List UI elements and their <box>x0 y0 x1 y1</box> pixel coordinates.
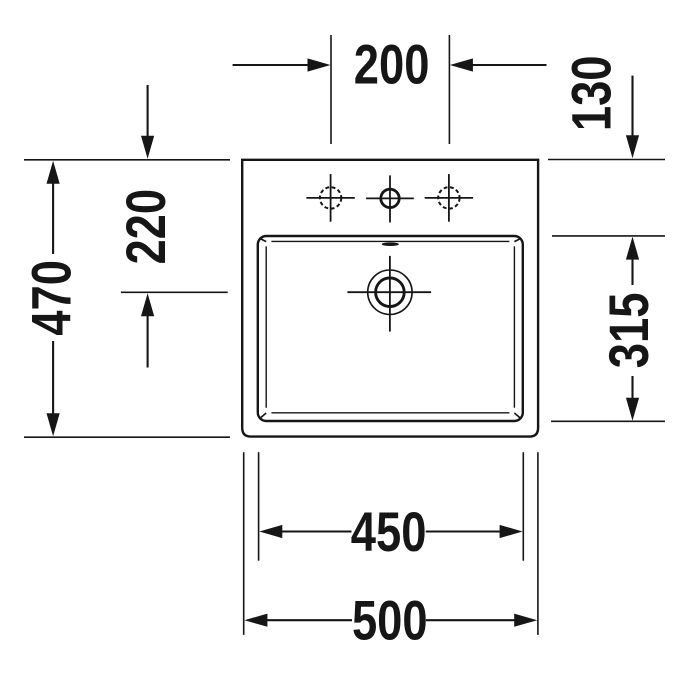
svg-text:500: 500 <box>352 589 428 652</box>
svg-text:220: 220 <box>114 189 177 265</box>
svg-text:470: 470 <box>20 260 83 336</box>
svg-text:450: 450 <box>351 500 427 563</box>
svg-text:315: 315 <box>598 293 661 369</box>
svg-text:200: 200 <box>354 33 430 96</box>
svg-text:130: 130 <box>560 55 623 131</box>
